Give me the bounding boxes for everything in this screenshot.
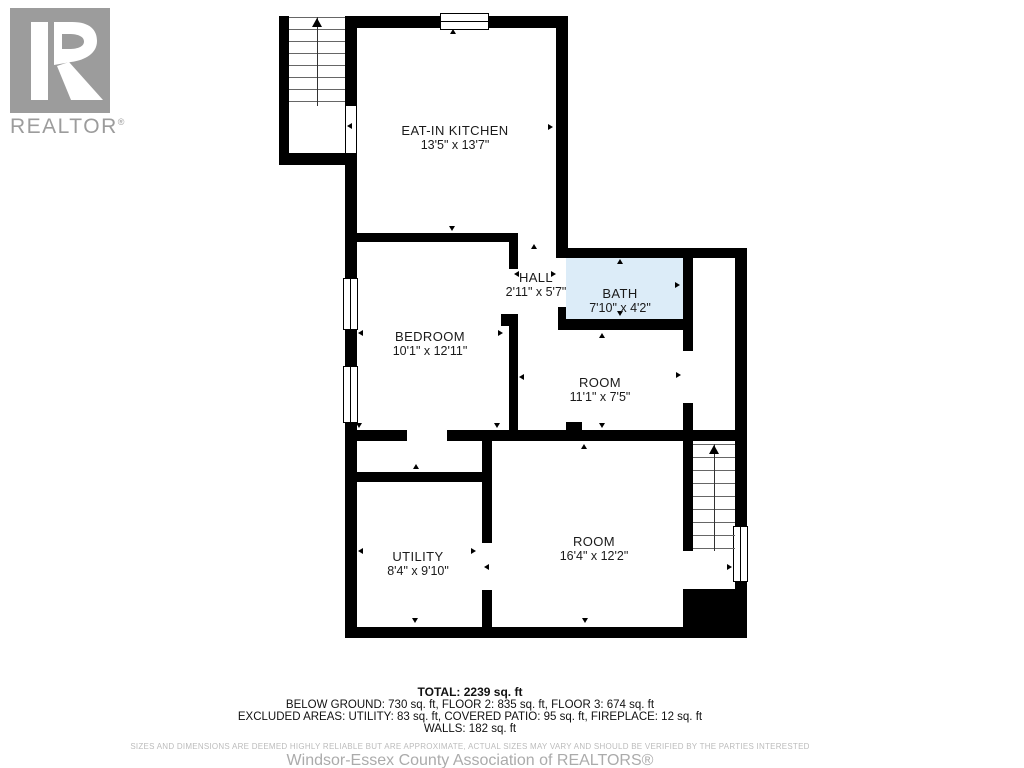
wall bbox=[345, 472, 492, 482]
window bbox=[733, 526, 748, 582]
wall bbox=[345, 430, 407, 441]
dimension-marker bbox=[548, 124, 553, 130]
wall bbox=[556, 16, 568, 258]
dimension-marker bbox=[599, 333, 605, 338]
room-label-eat-in-kitchen: EAT-IN KITCHEN 13'5" x 13'7" bbox=[401, 123, 508, 153]
floor-plan: EAT-IN KITCHEN 13'5" x 13'7" BEDROOM 10'… bbox=[0, 0, 1024, 768]
excluded-areas: EXCLUDED AREAS: UTILITY: 83 sq. ft, COVE… bbox=[0, 712, 940, 723]
stair-rail bbox=[317, 17, 318, 106]
room-label-bath: BATH 7'10" x 4'2" bbox=[589, 286, 651, 316]
total-area: TOTAL: 2239 sq. ft bbox=[0, 687, 940, 699]
fireplace bbox=[683, 589, 747, 638]
dimension-marker bbox=[358, 548, 363, 554]
floor-plan-page: REALTOR® bbox=[0, 0, 1024, 768]
floor-areas: BELOW GROUND: 730 sq. ft, FLOOR 2: 835 s… bbox=[0, 700, 940, 711]
dimension-marker bbox=[494, 423, 500, 428]
dimension-marker bbox=[581, 444, 587, 449]
dimension-marker bbox=[450, 29, 456, 34]
dimension-marker bbox=[484, 564, 489, 570]
room-label-room-lower: ROOM 16'4" x 12'2" bbox=[560, 534, 629, 564]
staircase-upper-left bbox=[289, 17, 345, 106]
dimension-marker bbox=[358, 330, 363, 336]
dimension-marker bbox=[498, 330, 503, 336]
stair-up-arrow-icon bbox=[709, 445, 719, 454]
stair-up-arrow-icon bbox=[312, 18, 322, 27]
chimney bbox=[566, 422, 582, 431]
window bbox=[343, 366, 358, 423]
wall bbox=[509, 314, 518, 441]
dimension-marker bbox=[347, 123, 352, 129]
dimension-marker bbox=[617, 259, 623, 264]
wall bbox=[447, 430, 747, 441]
stair-rail bbox=[714, 444, 715, 551]
wall bbox=[683, 441, 693, 551]
disclaimer-text: SIZES AND DIMENSIONS ARE DEEMED HIGHLY R… bbox=[0, 742, 940, 751]
room-label-bedroom: BEDROOM 10'1" x 12'11" bbox=[393, 329, 468, 359]
dimension-marker bbox=[449, 226, 455, 231]
wall bbox=[279, 16, 289, 165]
wall bbox=[556, 248, 747, 258]
dimension-marker bbox=[519, 374, 524, 380]
wall bbox=[345, 233, 517, 242]
room-label-hall: HALL 2'11" x 5'7" bbox=[506, 270, 567, 300]
staircase-lower-right bbox=[693, 444, 735, 551]
wall bbox=[345, 16, 357, 106]
dimension-marker bbox=[412, 618, 418, 623]
room-label-room-upper: ROOM 11'1" x 7'5" bbox=[570, 375, 631, 405]
dimension-marker bbox=[582, 618, 588, 623]
wall bbox=[482, 430, 492, 543]
area-summary: TOTAL: 2239 sq. ft BELOW GROUND: 730 sq.… bbox=[0, 687, 940, 735]
room-label-utility: UTILITY 8'4" x 9'10" bbox=[387, 549, 449, 579]
dimension-marker bbox=[727, 564, 732, 570]
association-name: Windsor-Essex County Association of REAL… bbox=[0, 752, 940, 768]
window bbox=[343, 278, 358, 330]
walls-area: WALLS: 182 sq. ft bbox=[0, 724, 940, 735]
wall bbox=[558, 319, 693, 330]
dimension-marker bbox=[675, 282, 680, 288]
window bbox=[440, 13, 489, 30]
dimension-marker bbox=[356, 423, 362, 428]
wall bbox=[509, 233, 518, 269]
wall bbox=[683, 258, 693, 351]
door-opening bbox=[345, 106, 357, 153]
dimension-marker bbox=[471, 548, 476, 554]
dimension-marker bbox=[413, 464, 419, 469]
dimension-marker bbox=[599, 423, 605, 428]
dimension-marker bbox=[531, 244, 537, 249]
dimension-marker bbox=[676, 372, 681, 378]
